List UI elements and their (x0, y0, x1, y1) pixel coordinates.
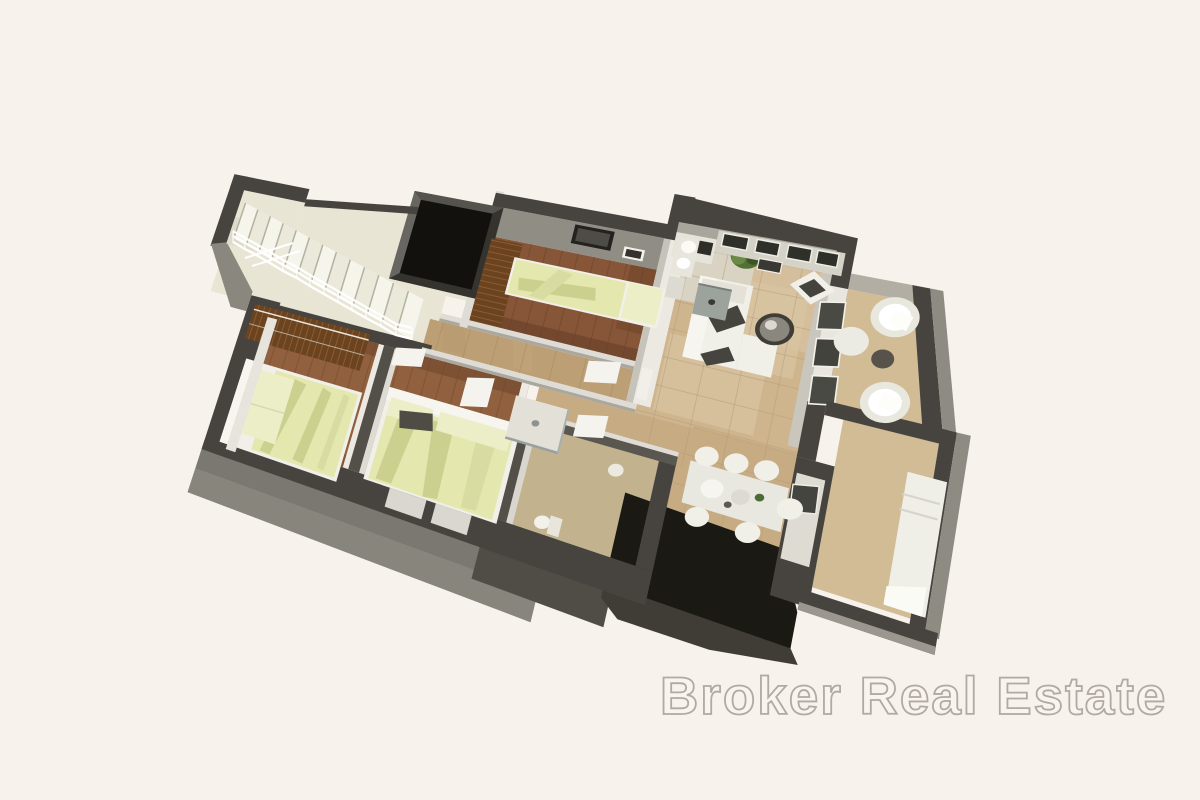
svg-text:Broker Real Estate: Broker Real Estate (660, 667, 1167, 726)
